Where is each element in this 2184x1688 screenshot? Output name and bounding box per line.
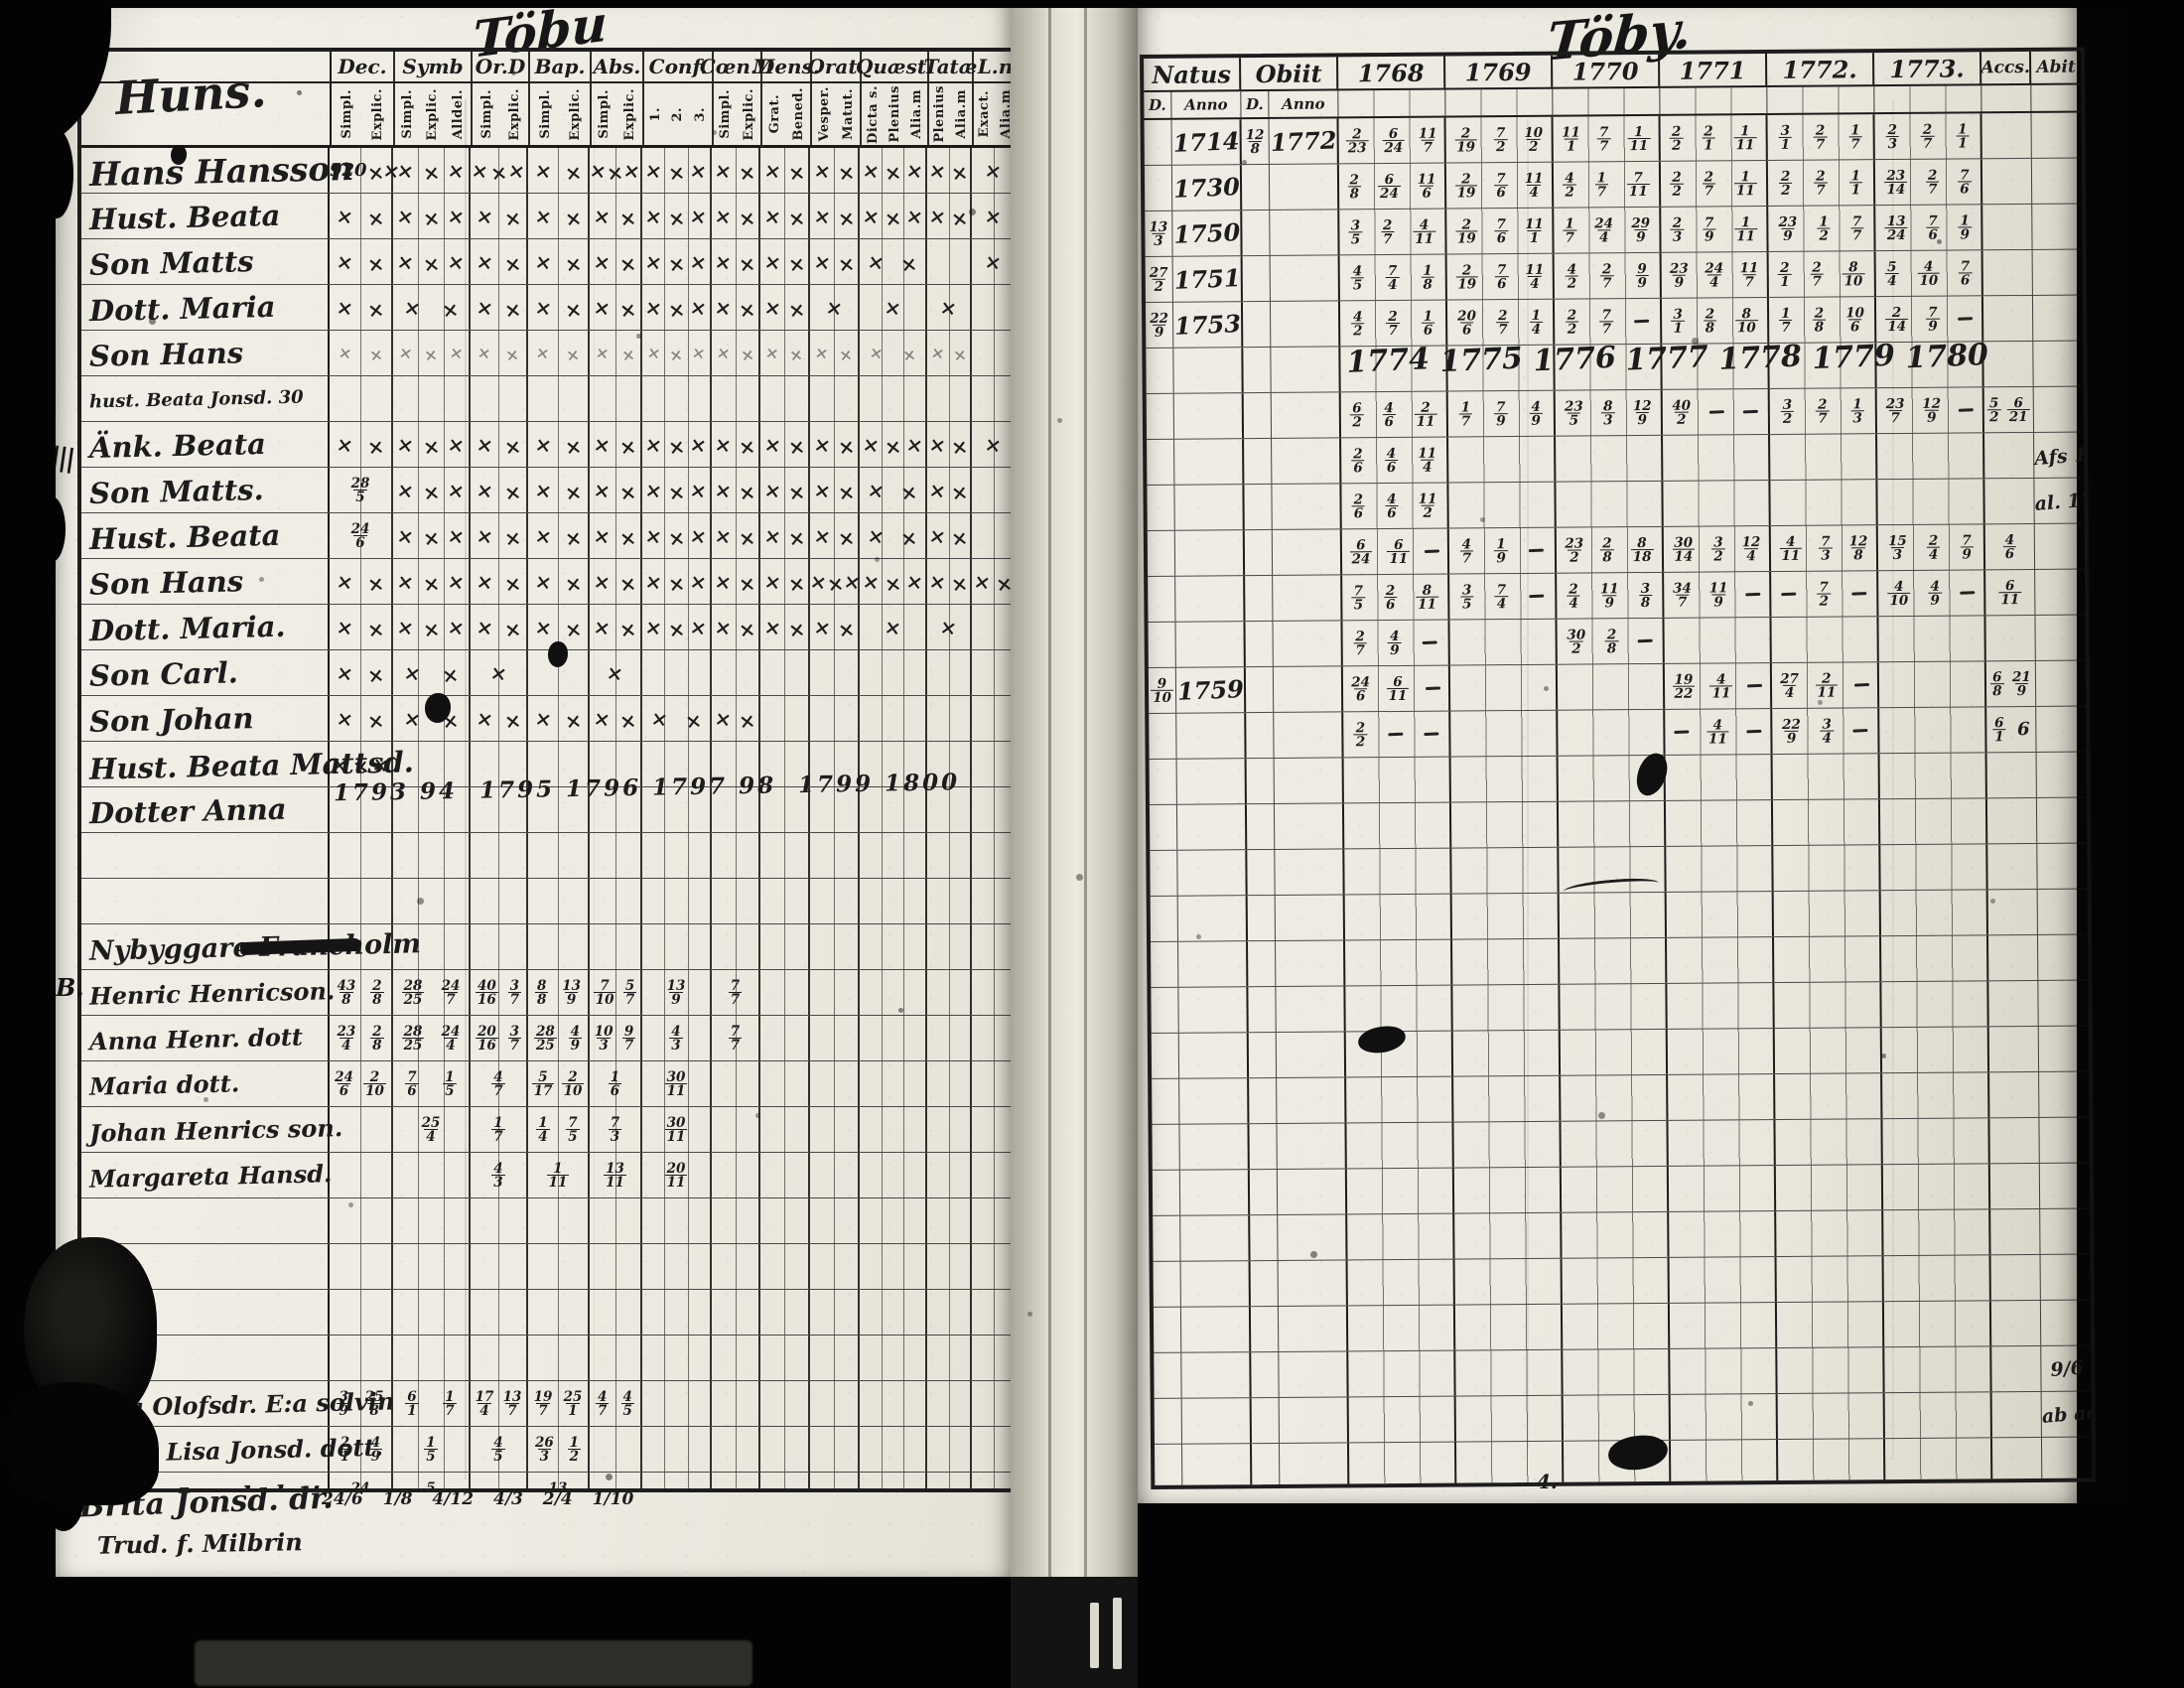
natus-day-cell bbox=[1152, 1125, 1179, 1170]
date-fraction: 16 bbox=[1422, 310, 1435, 336]
grid-cell bbox=[642, 1290, 712, 1335]
grid-cell: × bbox=[590, 650, 642, 695]
x-mark: × bbox=[335, 294, 354, 320]
x-mark: × bbox=[593, 614, 613, 639]
date-fraction: 17 bbox=[1848, 124, 1862, 150]
x-mark: × bbox=[475, 431, 494, 457]
grid-cell: ××× bbox=[393, 194, 471, 238]
year-cell bbox=[1563, 1304, 1670, 1349]
x-mark: × bbox=[446, 568, 466, 594]
x-mark: × bbox=[502, 525, 522, 551]
x-mark: × bbox=[904, 431, 924, 457]
date-fraction: 42 bbox=[1566, 263, 1579, 289]
grid-cell bbox=[642, 1381, 712, 1426]
date-fraction: 76 bbox=[405, 1071, 418, 1097]
year-cell bbox=[1775, 1119, 1882, 1165]
x-mark: × bbox=[605, 659, 624, 685]
x-mark: × bbox=[533, 477, 553, 502]
year-cell bbox=[1344, 758, 1451, 803]
x-mark: × bbox=[335, 431, 354, 457]
date-fraction: 17 bbox=[1459, 401, 1473, 427]
x-mark: × bbox=[836, 434, 856, 460]
x-mark: × bbox=[366, 708, 386, 734]
x-mark: × bbox=[842, 568, 862, 594]
date-fraction: 197 bbox=[534, 1391, 553, 1417]
margin-letter-mark: B. bbox=[56, 973, 84, 1002]
obiit-year-cell bbox=[1272, 484, 1341, 529]
date-fraction: 79 bbox=[1494, 401, 1508, 427]
record-row bbox=[1152, 1118, 2089, 1171]
x-mark: × bbox=[593, 477, 613, 502]
grid-cell: ×× bbox=[471, 194, 528, 238]
grid-cell bbox=[810, 650, 860, 695]
x-mark: × bbox=[366, 662, 386, 688]
grid-cell: 43828 bbox=[330, 970, 393, 1015]
date-fraction: 99 bbox=[1635, 262, 1649, 288]
obiit-day-cell bbox=[1252, 1444, 1280, 1488]
x-mark: × bbox=[928, 431, 948, 457]
x-mark: × bbox=[786, 434, 806, 460]
grid-cell bbox=[860, 650, 927, 695]
grid-cell: ×× bbox=[590, 194, 642, 238]
x-mark: × bbox=[470, 157, 489, 183]
accessit-cell bbox=[1984, 433, 2034, 478]
record-row: Margareta Hansd.4311113112011 bbox=[81, 1153, 1017, 1198]
year-column-header: 1773. bbox=[1874, 52, 1981, 84]
obiit-day-cell bbox=[1245, 530, 1273, 575]
x-mark: × bbox=[786, 571, 806, 597]
date-fraction: 237 bbox=[1886, 397, 1905, 423]
year-cell bbox=[1774, 982, 1881, 1028]
dash-mark bbox=[1745, 593, 1760, 597]
record-row: Son Matts.285×××××××××××××××××××××× bbox=[81, 468, 1017, 513]
obiit-year-cell bbox=[1271, 347, 1340, 392]
obiit-day-cell bbox=[1247, 804, 1275, 849]
date-fraction: 621 bbox=[2007, 396, 2030, 422]
date-fraction: 21 bbox=[1702, 125, 1715, 151]
grid-cell: ×× bbox=[927, 148, 972, 193]
date-fraction: 3011 bbox=[665, 1071, 688, 1097]
x-mark: × bbox=[402, 294, 422, 320]
date-fraction: 711 bbox=[1627, 171, 1650, 197]
x-mark: × bbox=[643, 248, 663, 274]
year-subcolumns bbox=[1660, 87, 1767, 114]
year-subcolumns bbox=[1553, 88, 1660, 115]
date-fraction: 26 bbox=[1384, 584, 1398, 610]
date-fraction: 223 bbox=[1346, 128, 1369, 154]
year-cell: 411 bbox=[1665, 709, 1772, 755]
x-mark: × bbox=[618, 206, 638, 231]
natus-year-cell bbox=[1178, 941, 1248, 987]
grid-cell: 88139 bbox=[528, 970, 590, 1015]
date-fraction: 47 bbox=[596, 1391, 609, 1417]
year-cell bbox=[1563, 1349, 1670, 1395]
x-mark: × bbox=[421, 525, 441, 551]
record-row bbox=[1151, 935, 2088, 988]
x-mark: × bbox=[666, 251, 686, 277]
grid-cell bbox=[471, 1244, 528, 1289]
subheader-label: Explic. bbox=[508, 88, 521, 141]
date-fraction: 19 bbox=[1494, 538, 1508, 564]
accessit-cell bbox=[1981, 113, 2031, 158]
date-fraction: 411 bbox=[1413, 218, 1435, 244]
year-cell bbox=[1348, 1351, 1455, 1397]
column-header: Abs. bbox=[592, 52, 644, 81]
year-cell bbox=[1453, 1076, 1561, 1122]
x-mark: × bbox=[666, 434, 686, 460]
column-header: Symb bbox=[395, 52, 473, 81]
date-fraction: 43 bbox=[491, 1163, 504, 1189]
year-column-header: 1768 bbox=[1338, 57, 1445, 89]
obiit-year-cell bbox=[1278, 1169, 1347, 1214]
x-mark: × bbox=[563, 206, 583, 231]
column-header: Orat. bbox=[812, 52, 862, 81]
grid-cell: ×× bbox=[760, 605, 810, 649]
obiit-year-cell bbox=[1276, 940, 1345, 986]
column-header: Dec. bbox=[332, 52, 395, 81]
record-row: 274930228 bbox=[1148, 616, 2085, 668]
grid-cell: × bbox=[927, 605, 972, 649]
year-cell: 2227111 bbox=[1661, 161, 1768, 207]
grid-cell bbox=[393, 376, 471, 421]
x-mark: × bbox=[714, 568, 734, 594]
date-fraction: 274 bbox=[1780, 672, 1799, 698]
grid-cell bbox=[927, 650, 972, 695]
subheader-cell: Anno bbox=[1171, 91, 1241, 118]
year-cell: 2646112 bbox=[1341, 484, 1448, 529]
year-cell bbox=[1666, 846, 1773, 892]
dash-mark bbox=[1747, 684, 1762, 688]
year-cell bbox=[1881, 890, 1988, 935]
obiit-year-cell bbox=[1273, 621, 1342, 666]
dash-mark bbox=[1529, 549, 1544, 553]
grid-cell: ×× bbox=[471, 696, 528, 741]
record-row: Hust. Beata×××××××××××××××××××××××××× bbox=[81, 194, 1017, 239]
grid-cell: ××× bbox=[642, 468, 712, 512]
grid-cell: ×× bbox=[330, 696, 393, 741]
below-table-mark: 4. bbox=[1537, 1470, 1558, 1493]
grid-cell bbox=[471, 376, 528, 421]
x-mark: × bbox=[899, 251, 919, 277]
x-mark: × bbox=[643, 614, 663, 639]
date-fraction: 15 bbox=[424, 1437, 437, 1463]
date-fraction: 28 bbox=[370, 1026, 383, 1052]
year-cell: 41173128 bbox=[1771, 525, 1878, 571]
date-fraction: 37 bbox=[508, 980, 521, 1006]
inline-year: 1775 bbox=[1438, 341, 1523, 379]
grid-cell: ×× bbox=[590, 331, 642, 375]
record-row bbox=[81, 1336, 1017, 1381]
natus-year-cell bbox=[1175, 530, 1245, 576]
x-mark: × bbox=[861, 203, 881, 228]
year-cell: 72 bbox=[1771, 571, 1878, 617]
grid-cell bbox=[860, 1290, 927, 1335]
grid-cell bbox=[642, 833, 712, 878]
natus-day-cell: 133 bbox=[1145, 211, 1172, 256]
accessit-cell bbox=[1987, 753, 2037, 797]
year-cell: 301432124 bbox=[1664, 526, 1771, 572]
x-mark: × bbox=[643, 522, 663, 548]
grid-cell bbox=[471, 1336, 528, 1380]
record-row bbox=[1152, 1027, 2089, 1079]
grid-cell: ××× bbox=[642, 422, 712, 467]
x-mark: × bbox=[335, 203, 354, 228]
date-fraction: 1311 bbox=[604, 1163, 626, 1189]
grid-cell: ×× bbox=[590, 285, 642, 330]
record-row: Änk. Beata×××××××××××××××××××××××××× bbox=[81, 422, 1017, 468]
year-cell bbox=[1669, 1211, 1776, 1257]
record-row: 1730286241162197611442177112227111222711… bbox=[1145, 159, 2082, 211]
year-cell: 2411938 bbox=[1557, 573, 1664, 619]
x-mark: × bbox=[446, 203, 466, 228]
obiit-day-cell bbox=[1246, 667, 1274, 712]
grid-cell: 10397 bbox=[590, 1016, 642, 1060]
grid-cell bbox=[712, 650, 760, 695]
year-cell bbox=[1348, 1306, 1455, 1351]
date-fraction: 75 bbox=[566, 1117, 579, 1143]
grid-cell: 6117 bbox=[393, 1381, 471, 1426]
date-fraction: 411 bbox=[1709, 673, 1732, 699]
x-mark: × bbox=[366, 434, 386, 460]
grid-cell: 1311 bbox=[590, 1153, 642, 1197]
x-mark: × bbox=[688, 568, 708, 594]
obiit-year-cell bbox=[1277, 1032, 1346, 1077]
grid-cell bbox=[590, 1198, 642, 1243]
subheader-label: Simpl. bbox=[598, 89, 611, 139]
subheader-label: Explic. bbox=[371, 88, 384, 141]
x-mark: × bbox=[861, 431, 881, 457]
date-fraction: 210 bbox=[363, 1071, 386, 1097]
subheader-label: Simpl. bbox=[480, 89, 493, 139]
grid-cell bbox=[860, 970, 927, 1015]
grid-cell: 43 bbox=[642, 1016, 712, 1060]
date-fraction: 347 bbox=[1673, 582, 1692, 608]
grid-cell bbox=[642, 1336, 712, 1380]
person-name: Nybyggare Francholm bbox=[81, 924, 330, 969]
year-cell: 21976114 bbox=[1447, 254, 1555, 300]
x-mark: × bbox=[502, 571, 522, 597]
grid-cell bbox=[393, 1198, 471, 1243]
grid-cell: × bbox=[471, 650, 528, 695]
year-cell: 2749 bbox=[1342, 621, 1449, 666]
date-fraction: 611 bbox=[1998, 580, 2021, 606]
x-mark: × bbox=[475, 294, 494, 320]
x-mark: × bbox=[666, 160, 686, 186]
natus-year-cell bbox=[1176, 713, 1246, 759]
x-mark: × bbox=[928, 522, 948, 548]
year-cell bbox=[1451, 757, 1559, 802]
date-fraction: 14 bbox=[1530, 309, 1544, 335]
grid-cell: 246 bbox=[330, 513, 393, 558]
natus-day-cell: 910 bbox=[1149, 668, 1176, 713]
year-cell bbox=[1344, 803, 1451, 849]
x-mark: × bbox=[762, 568, 782, 594]
date-fraction: 19 bbox=[1958, 214, 1972, 240]
grid-cell bbox=[712, 1153, 760, 1197]
grid-cell: ××× bbox=[642, 331, 712, 375]
left-table-body: Hans Hansson920×××××××××××××××××××××××××… bbox=[81, 148, 1017, 1492]
grid-cell: 197251 bbox=[528, 1381, 590, 1426]
grid-cell bbox=[810, 1381, 860, 1426]
grid-cell: ××× bbox=[590, 148, 642, 193]
year-cell bbox=[1560, 984, 1667, 1030]
x-mark: × bbox=[440, 662, 460, 688]
date-fraction: 11 bbox=[1849, 170, 1863, 196]
x-mark: × bbox=[533, 705, 553, 731]
x-mark: × bbox=[950, 480, 970, 505]
obiit-year-cell bbox=[1279, 1260, 1348, 1306]
obiit-year-cell bbox=[1279, 1351, 1348, 1397]
year-cell bbox=[1450, 711, 1558, 757]
obiit-year-cell bbox=[1274, 666, 1343, 712]
grid-cell bbox=[760, 1381, 810, 1426]
natus-day-cell bbox=[1150, 805, 1177, 850]
year-cell bbox=[1454, 1168, 1562, 1213]
grid-cell bbox=[927, 376, 972, 421]
grid-cell: 4745 bbox=[590, 1381, 642, 1426]
grid-cell: ××× bbox=[393, 605, 471, 649]
year-cell: 1922411 bbox=[1665, 663, 1772, 709]
natus-day-cell bbox=[1151, 942, 1178, 987]
date-fraction: 49 bbox=[1529, 400, 1543, 426]
natus-year-cell bbox=[1182, 1444, 1252, 1489]
grid-cell bbox=[642, 879, 712, 923]
x-mark: × bbox=[563, 480, 583, 505]
inline-years-row: 1774177517761777177817791780 bbox=[1342, 333, 1991, 383]
date-fraction: 3011 bbox=[665, 1117, 688, 1143]
grid-cell bbox=[760, 1198, 810, 1243]
x-mark: × bbox=[446, 614, 466, 639]
year-cell: 177949 bbox=[1448, 391, 1556, 437]
grid-cell: ×× bbox=[712, 239, 760, 284]
date-fraction: 28 bbox=[1704, 308, 1717, 334]
x-mark: × bbox=[688, 477, 708, 502]
year-cell: 402 bbox=[1663, 389, 1770, 435]
grid-cell bbox=[712, 924, 760, 969]
year-cell: 232711 bbox=[1874, 113, 1981, 159]
year-cell bbox=[1670, 1303, 1777, 1348]
grid-cell: ×× bbox=[590, 513, 642, 558]
grid-cell: ×× bbox=[712, 148, 760, 193]
person-name: Anna Henr. dott bbox=[81, 1016, 330, 1060]
date-fraction: 17 bbox=[1563, 217, 1576, 243]
grid-cell bbox=[810, 879, 860, 923]
x-mark: × bbox=[396, 431, 416, 457]
grid-cell bbox=[860, 1336, 927, 1380]
record-row bbox=[81, 833, 1017, 879]
grid-cell: ×× bbox=[760, 239, 810, 284]
year-cell bbox=[1667, 892, 1774, 937]
x-mark: × bbox=[904, 568, 924, 594]
person-name: Hust. Beata bbox=[81, 513, 330, 558]
year-cell: 30228 bbox=[1557, 619, 1664, 664]
x-mark: × bbox=[666, 297, 686, 323]
date-fraction: 229 bbox=[1782, 718, 1801, 744]
column-header: Accs. bbox=[1981, 52, 2031, 83]
x-mark: × bbox=[421, 251, 441, 277]
record-row bbox=[1152, 1072, 2089, 1125]
x-mark: × bbox=[861, 568, 881, 594]
x-mark: × bbox=[421, 434, 441, 460]
date-fraction: 46 bbox=[1385, 492, 1399, 518]
grid-cell bbox=[810, 1473, 860, 1492]
grid-cell: 111 bbox=[528, 1153, 590, 1197]
natus-year-cell: 1751 bbox=[1173, 256, 1243, 302]
x-mark: × bbox=[928, 477, 948, 502]
x-mark: × bbox=[643, 203, 663, 228]
obiit-year-cell bbox=[1271, 255, 1340, 301]
subheader-label: Simpl. bbox=[401, 89, 414, 139]
grid-cell: ×× bbox=[590, 696, 642, 741]
x-mark: × bbox=[335, 568, 354, 594]
x-mark: × bbox=[738, 160, 757, 186]
year-cell bbox=[1884, 1255, 1991, 1301]
grid-cell bbox=[927, 879, 972, 923]
x-mark: × bbox=[714, 614, 734, 639]
grid-cell bbox=[860, 696, 927, 741]
date-fraction: 14 bbox=[536, 1117, 549, 1143]
grid-cell: 77 bbox=[712, 970, 760, 1015]
grid-cell: ×× bbox=[330, 239, 393, 284]
grid-cell: ×× bbox=[330, 285, 393, 330]
x-mark: × bbox=[836, 251, 856, 277]
obiit-day-cell bbox=[1244, 485, 1272, 529]
x-mark: × bbox=[421, 480, 441, 505]
x-mark: × bbox=[786, 480, 806, 505]
date-fraction: 810 bbox=[1842, 261, 1864, 287]
date-fraction: 74 bbox=[1386, 264, 1400, 290]
date-fraction: 239 bbox=[1670, 262, 1689, 288]
natus-day-cell bbox=[1145, 166, 1172, 211]
year-cell: 3527411 bbox=[1339, 210, 1446, 255]
x-mark: × bbox=[762, 614, 782, 639]
grid-cell: ××× bbox=[810, 559, 860, 604]
x-mark: × bbox=[983, 203, 1003, 228]
date-fraction: 77 bbox=[1850, 215, 1864, 241]
subheader-group: Simpl.Explic. bbox=[332, 83, 395, 145]
year-cell: 23583129 bbox=[1556, 390, 1663, 436]
record-row: Hans Hansson920×××××××××××××××××××××××××… bbox=[81, 148, 1017, 194]
x-mark: × bbox=[396, 568, 416, 594]
grid-cell: ×× bbox=[471, 513, 528, 558]
year-cell: 347119 bbox=[1664, 572, 1771, 618]
record-row: 2241122934616 bbox=[1149, 707, 2086, 760]
grid-cell: 26312 bbox=[528, 1427, 590, 1472]
natus-year-cell bbox=[1181, 1352, 1251, 1398]
date-fraction: 116 bbox=[1418, 173, 1436, 199]
x-mark: × bbox=[533, 248, 553, 274]
natus-day-cell bbox=[1153, 1171, 1180, 1215]
grid-cell: ×× bbox=[712, 605, 760, 649]
x-mark: × bbox=[563, 617, 583, 642]
dash-mark bbox=[1958, 317, 1973, 321]
subheader-label: Simpl. bbox=[341, 89, 353, 139]
grid-cell bbox=[927, 1381, 972, 1426]
natus-year-cell bbox=[1181, 1261, 1251, 1307]
obiit-day-cell bbox=[1245, 622, 1273, 666]
grid-cell: ×× bbox=[330, 559, 393, 604]
grid-cell: ×× bbox=[810, 422, 860, 467]
year-subcolumns bbox=[1767, 86, 1874, 113]
person-name: Dotter Anna bbox=[81, 787, 330, 832]
obiit-day-cell: 128 bbox=[1242, 119, 1270, 164]
x-mark: × bbox=[762, 477, 782, 502]
natus-day-cell bbox=[1153, 1216, 1180, 1261]
left-page: Töbu Huns. Dec.SymbOr.DBap.Abs.Conf.Cœn.… bbox=[56, 0, 1011, 1579]
grid-cell bbox=[590, 879, 642, 923]
date-fraction: 28 bbox=[1605, 629, 1619, 654]
x-mark: × bbox=[688, 294, 708, 320]
